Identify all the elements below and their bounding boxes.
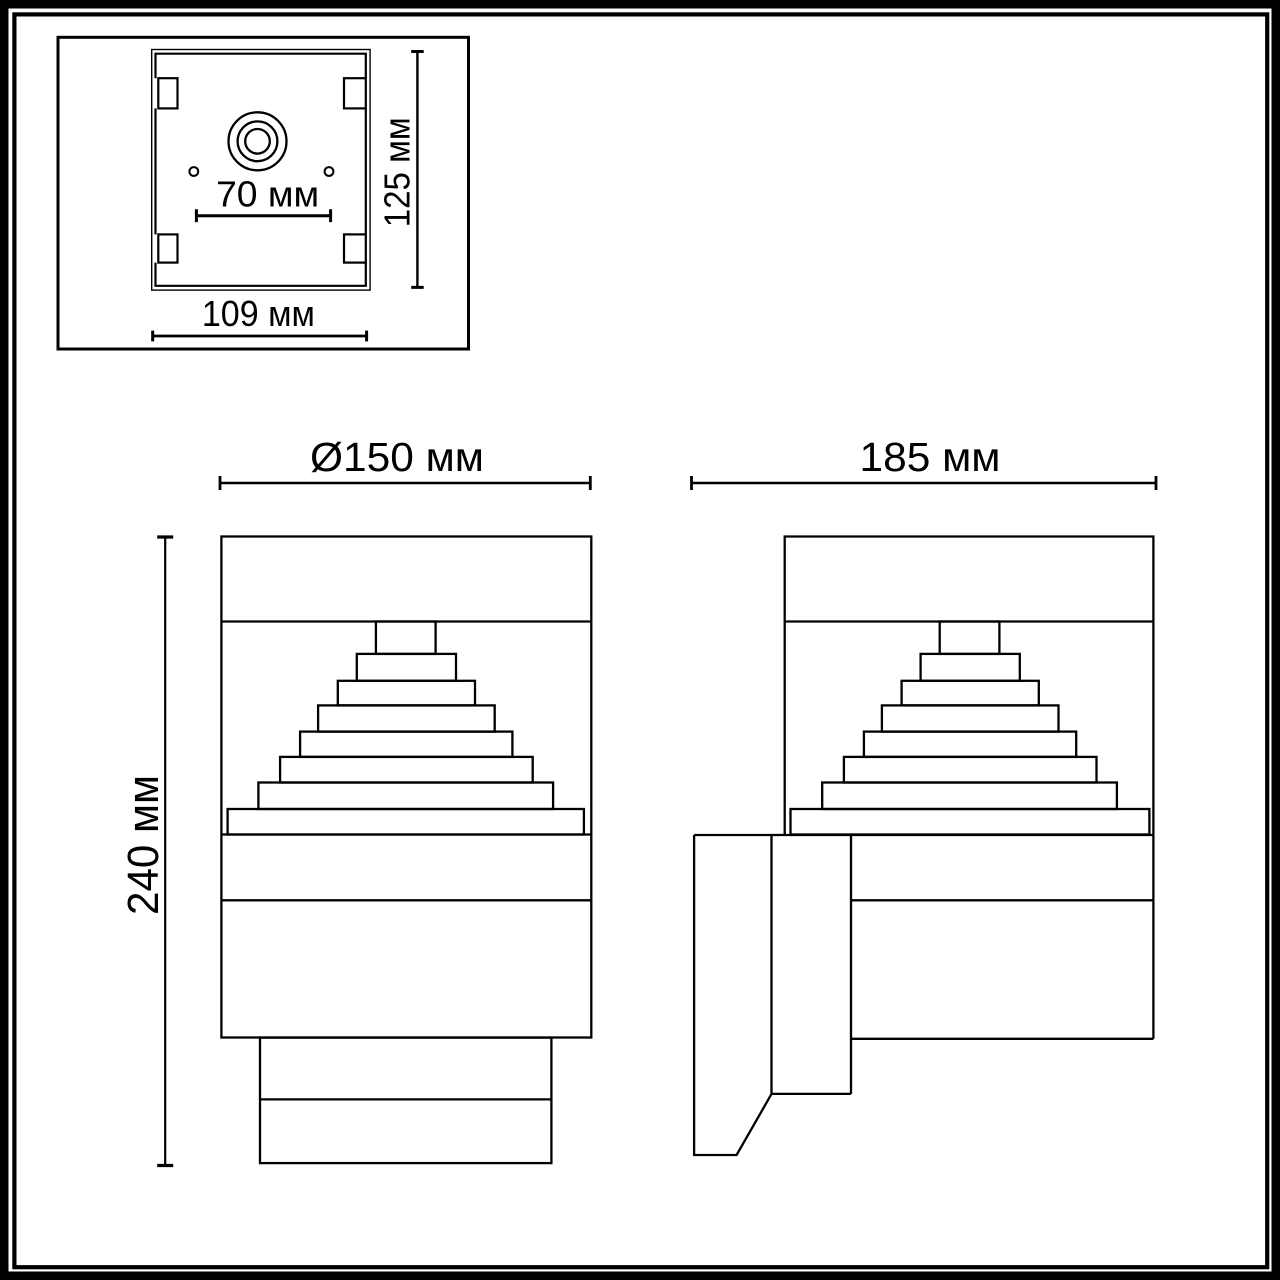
svg-text:125 мм: 125 мм — [376, 117, 417, 227]
svg-text:240 мм: 240 мм — [119, 775, 168, 915]
svg-text:Ø150 мм: Ø150 мм — [310, 434, 484, 480]
svg-text:70 мм: 70 мм — [216, 173, 319, 214]
svg-text:109 мм: 109 мм — [202, 293, 315, 334]
svg-text:185 мм: 185 мм — [860, 434, 1001, 480]
